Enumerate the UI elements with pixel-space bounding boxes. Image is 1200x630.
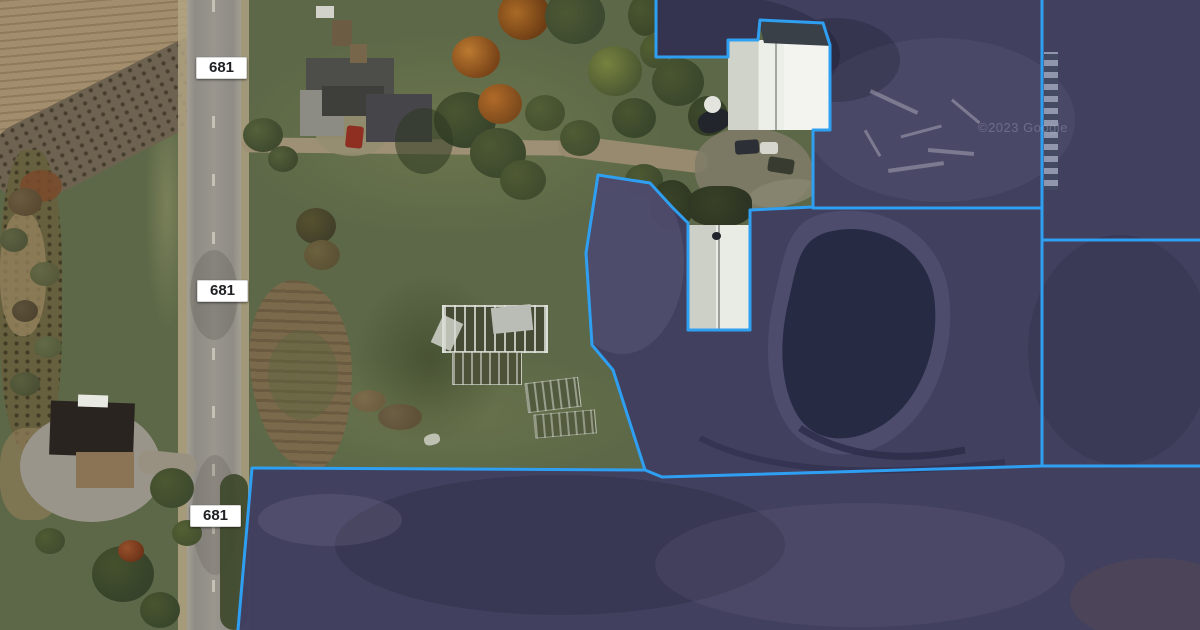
route-shield-681[interactable]: 681 bbox=[197, 280, 248, 302]
imagery-watermark: ©2023 Google bbox=[978, 120, 1068, 135]
route-shield-681[interactable]: 681 bbox=[190, 505, 241, 527]
parcel-overlay bbox=[0, 0, 1200, 630]
route-shield-681[interactable]: 681 bbox=[196, 57, 247, 79]
satellite-map[interactable]: 681 681 681 ©2023 Google bbox=[0, 0, 1200, 630]
